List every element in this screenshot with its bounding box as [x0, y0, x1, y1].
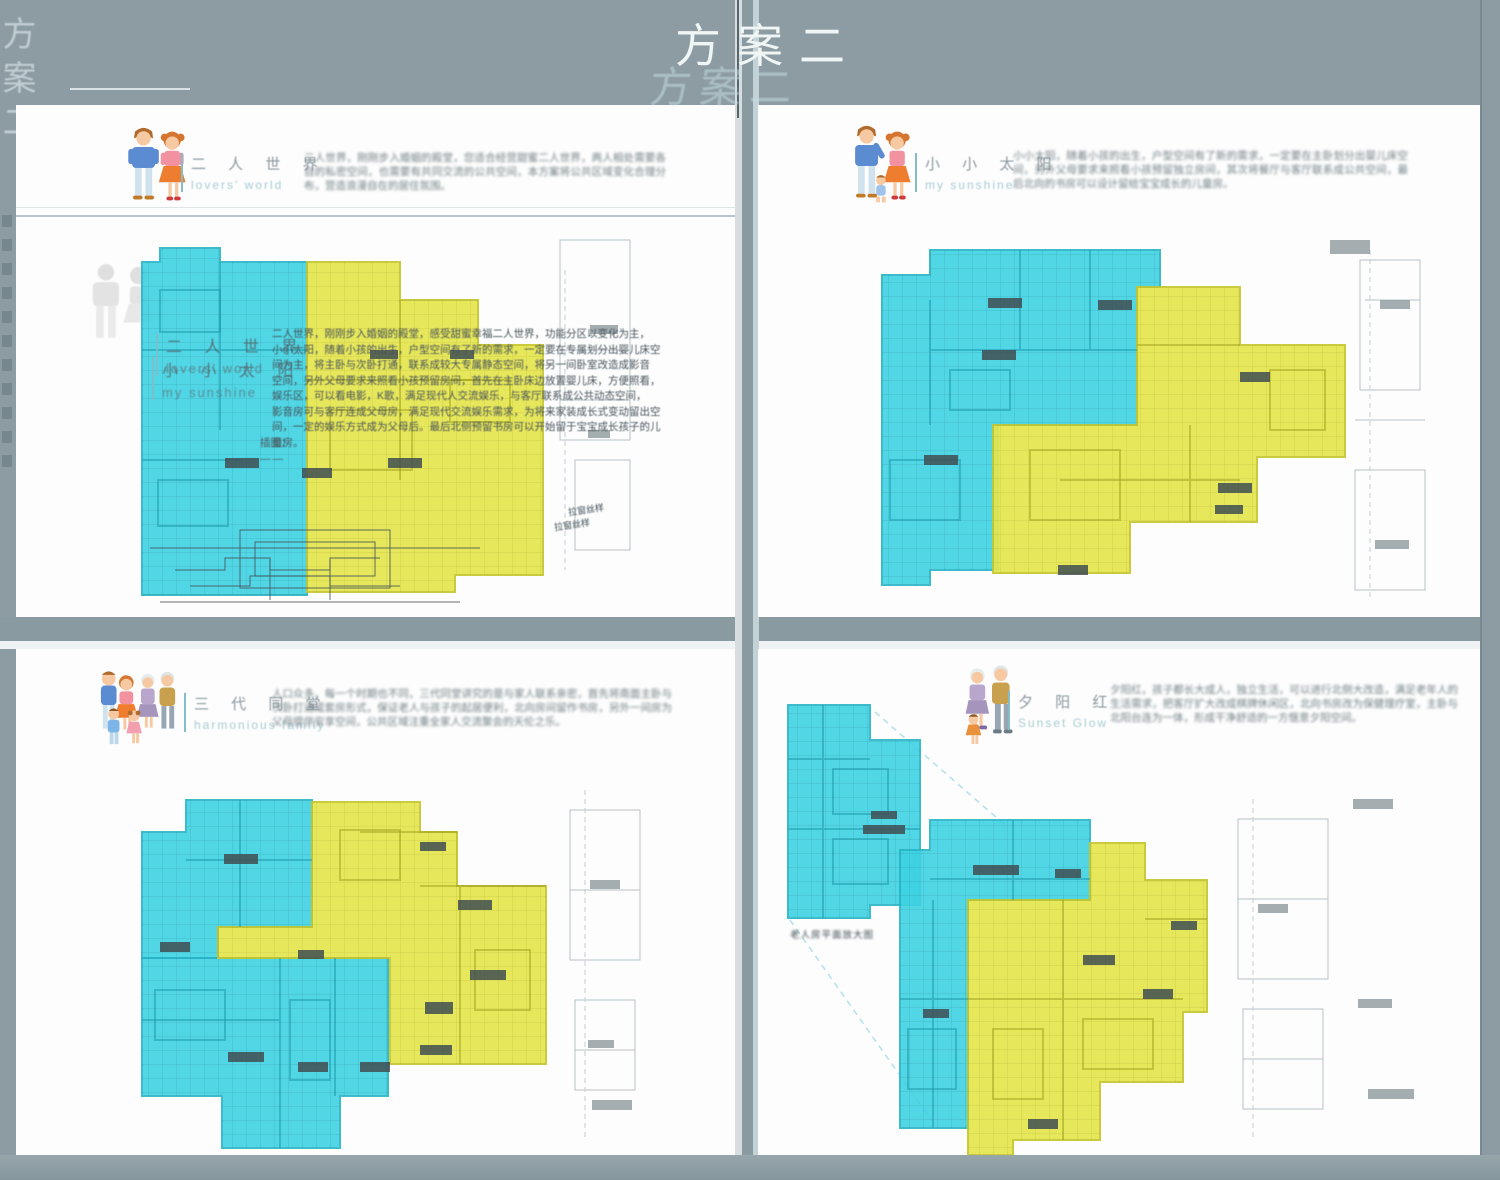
header-rule	[16, 215, 735, 217]
cad-lines	[570, 790, 640, 1140]
panel-paragraph: 二人世界，刚刚步入婚姻的殿堂，您适合经营甜蜜二人世界，两人相处需要各自的私密空间…	[304, 151, 666, 193]
floor-plan-family	[120, 770, 660, 1155]
cad-lines	[1238, 799, 1414, 1139]
center-strip-left	[735, 0, 742, 1180]
floor-plan-sunshine	[860, 240, 1440, 615]
right-bleed	[1480, 0, 1500, 1180]
big-family-illustration	[96, 667, 182, 751]
panel-my-sunshine: 小 小 太 阳 my sunshine 小小太阳，随着小孩的出生，户型空间有了新…	[758, 105, 1480, 617]
center-strip	[742, 0, 753, 1180]
panel-paragraph: 小小太阳，随着小孩的出生，户型空间有了新的需求，一定要在主卧划分出婴儿床空间，另…	[1013, 149, 1408, 191]
overlay-paragraph: 二人世界，刚刚步入婚姻的殿堂，感受甜蜜幸福二人世界，功能分区以变化为主， 小小太…	[272, 327, 682, 451]
floor-plan-sunset	[783, 699, 1468, 1155]
overlay-annot-dash: ——	[260, 453, 285, 465]
small-plan-caption: 老人房平面放大图	[790, 927, 874, 941]
main-title: 方案二	[638, 10, 898, 76]
panel-paragraph: 人口众多，每一个时期也不同，三代同堂讲究的是与家人联系亲密，首先将南面主卧与次卧…	[272, 687, 672, 729]
registration-line	[70, 88, 190, 90]
bottom-bleed	[0, 1155, 1500, 1180]
panel-three-generations: 三 代 同 堂 harmonious family 人口众多，每一个时期也不同，…	[16, 649, 735, 1155]
panel-sunset-glow: 夕 阳 红 Sunset Glow 夕阳红，孩子都长大成人，独立生活，可以进行北…	[758, 649, 1480, 1155]
family-with-baby-illustration	[843, 123, 915, 209]
panel-lovers-world: 二 人 世 界 lovers' world 二人世界，刚刚步入婚姻的殿堂，您适合…	[16, 105, 735, 617]
overlay-annot-label: 插图：	[260, 435, 292, 450]
couple-illustration	[120, 125, 190, 209]
